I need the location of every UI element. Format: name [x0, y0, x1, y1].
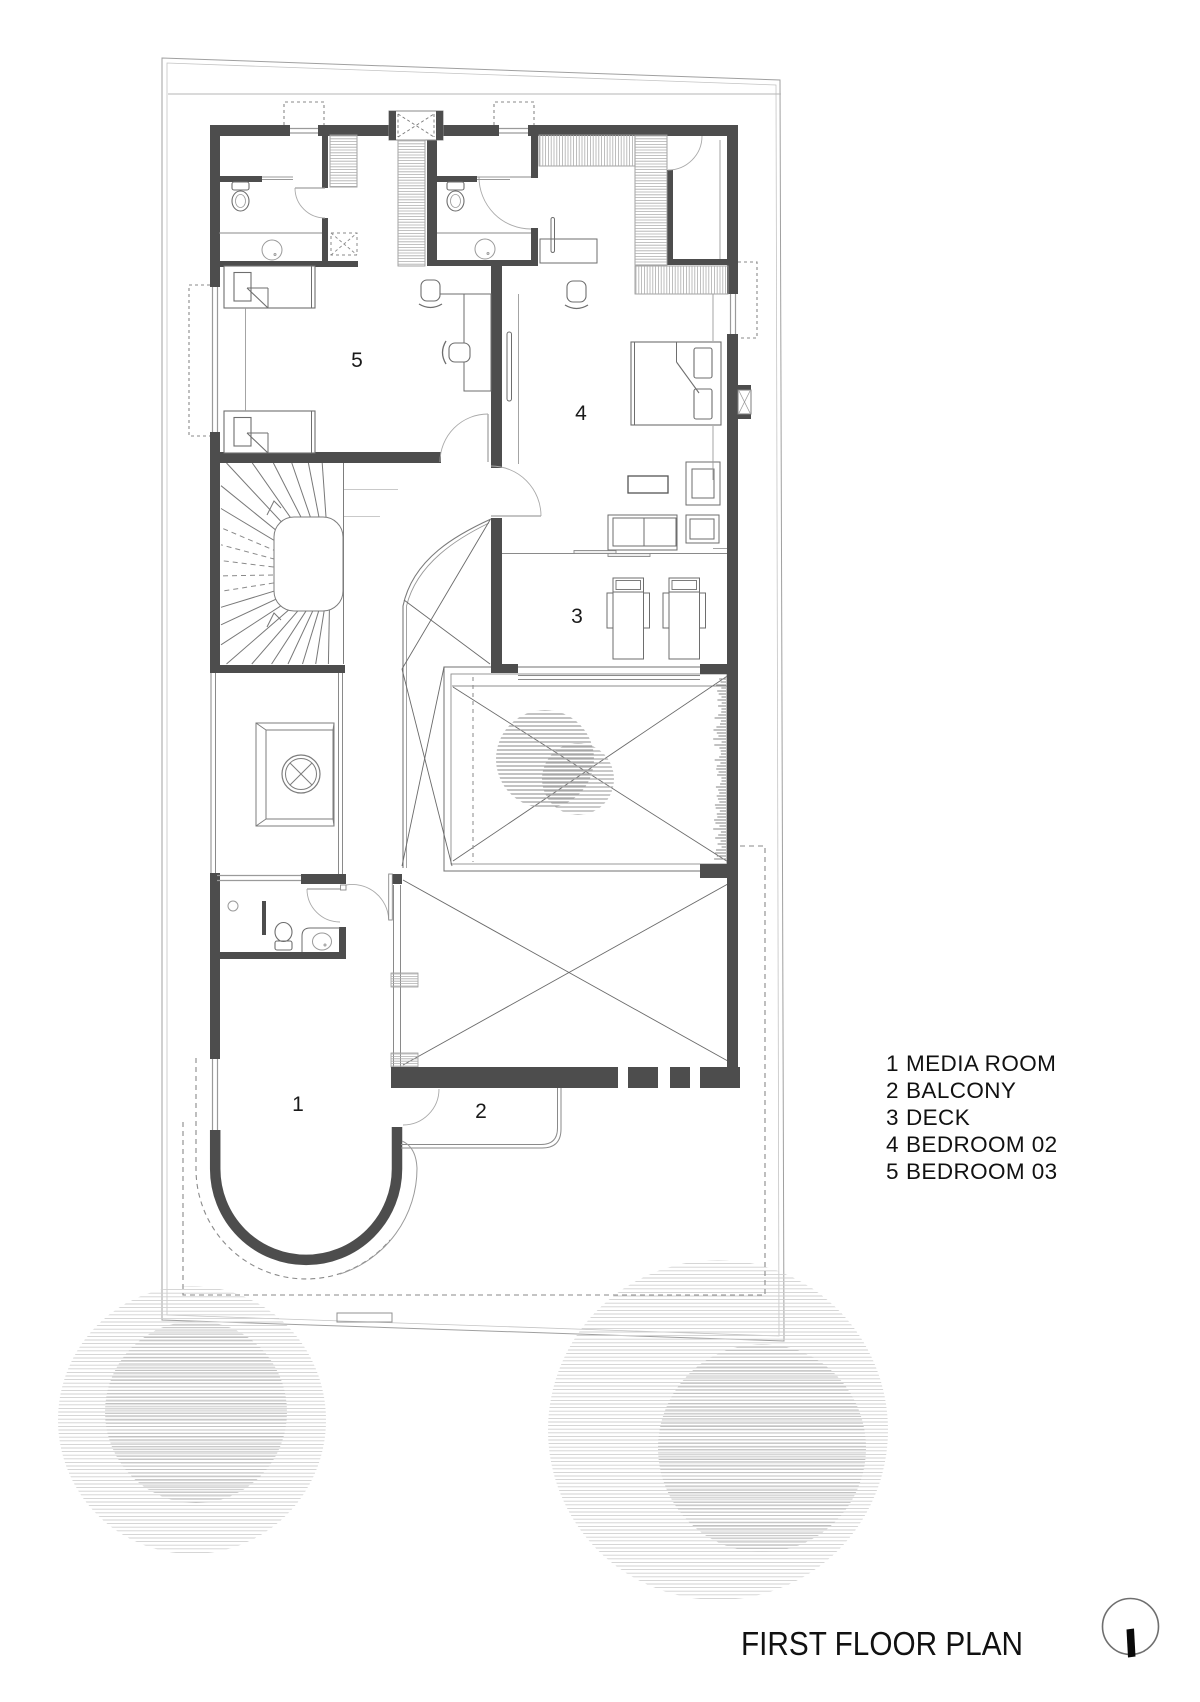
svg-text:3: 3 [571, 605, 583, 628]
svg-text:2BALCONY: 2BALCONY [886, 1078, 1016, 1103]
svg-text:2: 2 [475, 1100, 487, 1123]
svg-text:1: 1 [292, 1093, 304, 1116]
svg-text:5: 5 [351, 349, 363, 372]
svg-text:3DECK: 3DECK [886, 1105, 970, 1130]
svg-text:4BEDROOM 02: 4BEDROOM 02 [886, 1132, 1058, 1157]
svg-text:5BEDROOM 03: 5BEDROOM 03 [886, 1159, 1058, 1184]
svg-text:1MEDIA ROOM: 1MEDIA ROOM [886, 1051, 1056, 1076]
svg-text:FIRST FLOOR PLAN: FIRST FLOOR PLAN [741, 1625, 1023, 1662]
svg-text:4: 4 [575, 402, 587, 425]
